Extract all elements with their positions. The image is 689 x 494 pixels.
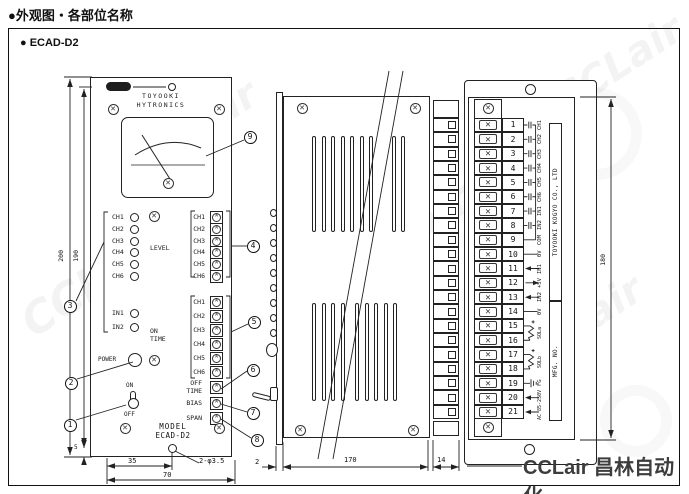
callout-off-time-pot: 6	[247, 364, 260, 377]
vent-slot	[401, 136, 405, 232]
terminal-screw-icon: ✕	[479, 292, 497, 302]
screw-icon: ✕	[297, 103, 308, 114]
dim-panel-2: 2	[255, 458, 259, 466]
mfg-plate-text: MFG. NO.	[552, 345, 559, 377]
terminal-number: 13	[502, 290, 524, 304]
terminal-screw-cell: ✕	[474, 118, 502, 132]
terminal-screw-icon: ✕	[479, 378, 497, 388]
terminal-screw-icon: ✕	[479, 192, 497, 202]
channel-led	[130, 272, 139, 281]
screw-icon: ✕	[163, 178, 174, 189]
power-switch-bushing-icon	[128, 398, 139, 409]
terminal-screw-icon: ✕	[479, 177, 497, 187]
terminal-number: 6	[502, 190, 524, 204]
pot-knob-icon: ✕	[212, 213, 221, 222]
brand-badge-icon	[106, 82, 131, 91]
pot-channel-label: CH2	[186, 312, 205, 320]
terminal-screw-cell: ✕	[474, 347, 502, 361]
vent-slot	[355, 303, 359, 401]
screw-icon: ✕	[214, 104, 225, 115]
pot-knob-icon: ✕	[212, 414, 221, 423]
terminal-profile-screw-icon	[448, 121, 456, 129]
callout-power-lamp: 2	[65, 377, 78, 390]
pot-channel-label: CH4	[186, 248, 205, 256]
pot-channel-label: CH6	[186, 272, 205, 280]
terminal-screw-cell: ✕	[474, 147, 502, 161]
screw-icon: ✕	[149, 355, 160, 366]
vent-slot	[341, 303, 345, 401]
terminal-number: 17	[502, 347, 524, 361]
bottom-mounting-hole-icon	[168, 444, 177, 453]
pot-knob-icon: ✕	[212, 312, 221, 321]
pot-knob-icon: ✕	[212, 248, 221, 257]
power-lamp	[128, 353, 142, 367]
terminal-screw-cell: ✕	[474, 218, 502, 232]
knob-bump-icon	[270, 239, 277, 247]
channel-pot: ✕	[210, 338, 223, 351]
pot-channel-label: CH4	[186, 340, 205, 348]
terminal-profile-screw-icon	[448, 250, 456, 258]
terminal-screw-cell: ✕	[474, 376, 502, 390]
input-led	[130, 323, 139, 332]
knob-bump-icon	[270, 329, 277, 337]
callout-meter: 9	[244, 131, 257, 144]
terminal-screw-icon: ✕	[479, 263, 497, 273]
terminal-number: 14	[502, 304, 524, 318]
terminal-profile-screw-icon	[448, 308, 456, 316]
terminal-number: 8	[502, 218, 524, 232]
terminal-profile-screw-icon	[448, 150, 456, 158]
page-title: ●外观图・各部位名称	[8, 5, 133, 24]
callout-span-pot: 8	[251, 434, 264, 447]
brand-line-1: TOYOOKI	[90, 92, 232, 100]
dim-terminal-14: 14	[437, 456, 445, 464]
terminal-profile-screw-icon	[448, 236, 456, 244]
terminal-pair-label: SOLb	[535, 346, 546, 378]
terminal-screw-cell: ✕	[474, 204, 502, 218]
channel-led	[130, 213, 139, 222]
pot-channel-label: CH2	[186, 225, 205, 233]
vent-slot	[393, 303, 397, 401]
pot-channel-label: CH6	[186, 368, 205, 376]
callout-bias-pot: 7	[247, 407, 260, 420]
pot-channel-label: CH5	[186, 260, 205, 268]
terminal-screw-cell: ✕	[474, 190, 502, 204]
vent-slot	[312, 136, 316, 232]
callout-power-switch: 1	[64, 419, 77, 432]
terminal-screw-cell: ✕	[474, 405, 502, 419]
screw-icon: ✕	[149, 211, 160, 222]
channel-led	[130, 248, 139, 257]
vent-slot	[350, 136, 354, 232]
screw-icon: ✕	[120, 423, 131, 434]
pot-knob-icon: ✕	[212, 326, 221, 335]
terminal-profile-screw-icon	[448, 379, 456, 387]
terminal-screw-cell: ✕	[474, 276, 502, 290]
callout-indicator-leds: 3	[64, 300, 77, 313]
terminal-screw-icon: ✕	[479, 321, 497, 331]
terminal-screw-cell: ✕	[474, 333, 502, 347]
led-label: CH5	[112, 260, 124, 268]
terminal-profile-screw-icon	[448, 336, 456, 344]
footer-watermark: CCLair 昌林自动化	[523, 451, 689, 494]
channel-pot: ✕	[210, 270, 223, 283]
dim-width-70: 70	[163, 471, 171, 479]
vent-slot	[322, 136, 326, 232]
terminal-number: 9	[502, 233, 524, 247]
vent-slot	[384, 303, 388, 401]
pot-channel-label: CH1	[186, 298, 205, 306]
switch-off-label: OFF	[124, 411, 135, 419]
knob-bump-icon	[270, 254, 277, 262]
terminal-screw-icon: ✕	[479, 350, 497, 360]
terminal-number: 1	[502, 118, 524, 132]
screw-icon: ✕	[408, 425, 419, 436]
single-pot-label: TIME	[168, 387, 202, 395]
toggle-mount-icon	[270, 387, 278, 401]
terminal-number: 2	[502, 132, 524, 146]
vent-slot	[331, 136, 335, 232]
channel-pot: ✕	[210, 366, 223, 379]
pot-knob-icon: ✕	[212, 399, 221, 408]
terminal-profile-screw-icon	[448, 322, 456, 330]
rear-top-hole-icon	[525, 84, 536, 95]
terminal-profile-screw-icon	[448, 408, 456, 416]
terminal-screw-icon: ✕	[479, 235, 497, 245]
vent-slot	[360, 136, 364, 232]
terminal-profile-end	[433, 100, 459, 118]
terminal-screw-icon: ✕	[479, 364, 497, 374]
switch-on-label: ON	[126, 382, 133, 390]
maker-plate-text: TOYOOKI KOGYO CO., LTD	[552, 168, 559, 256]
model-name-line2: ECAD-D2	[121, 432, 225, 441]
terminal-screw-icon: ✕	[479, 163, 497, 173]
led-label: CH1	[112, 213, 124, 221]
pot-knob-icon: ✕	[212, 368, 221, 377]
single-pot-label: SPAN	[168, 414, 202, 422]
led-label: CH4	[112, 248, 124, 256]
input-label: IN2	[112, 323, 124, 331]
terminal-screw-icon: ✕	[479, 206, 497, 216]
knob-bump-icon	[270, 284, 277, 292]
power-label: POWER	[98, 356, 116, 364]
terminal-screw-icon: ✕	[479, 120, 497, 130]
terminal-screw-cell: ✕	[474, 362, 502, 376]
knob-bump-icon	[270, 224, 277, 232]
terminal-number: 5	[502, 175, 524, 189]
vent-slot	[392, 136, 396, 232]
terminal-screw-cell: ✕	[474, 247, 502, 261]
terminal-number: 3	[502, 147, 524, 161]
channel-pot: ✕	[210, 324, 223, 337]
pot-knob-icon: ✕	[212, 340, 221, 349]
terminal-profile-screw-icon	[448, 164, 456, 172]
terminal-number: 21	[502, 405, 524, 419]
terminal-profile-screw-icon	[448, 135, 456, 143]
callout-level-pots: 4	[247, 240, 260, 253]
screw-icon: ✕	[108, 104, 119, 115]
led-label: CH3	[112, 237, 124, 245]
pot-knob-icon: ✕	[212, 354, 221, 363]
knob-bump-icon	[270, 209, 277, 217]
terminal-profile-screw-icon	[448, 265, 456, 273]
callout-on-time-pots: 5	[248, 316, 261, 329]
terminal-screw-icon: ✕	[479, 149, 497, 159]
terminal-number: 11	[502, 261, 524, 275]
led-label: CH2	[112, 225, 124, 233]
terminal-screw-cell: ✕	[474, 304, 502, 318]
terminal-screw-cell: ✕	[474, 161, 502, 175]
top-mounting-hole-icon	[168, 83, 176, 91]
vent-slot	[312, 303, 316, 401]
screw-icon: ✕	[214, 423, 225, 434]
channel-pot: ✕	[210, 352, 223, 365]
knob-bump-icon	[270, 314, 277, 322]
terminal-number: 7	[502, 204, 524, 218]
off-time-pot: ✕	[210, 381, 223, 394]
screw-icon: ✕	[410, 103, 421, 114]
terminal-number: 15	[502, 319, 524, 333]
terminal-profile-screw-icon	[448, 365, 456, 373]
channel-pot: ✕	[210, 296, 223, 309]
terminal-profile-screw-icon	[448, 193, 456, 201]
pot-channel-label: CH3	[186, 326, 205, 334]
watermark-ring	[600, 385, 672, 457]
vent-slot	[374, 303, 378, 401]
input-led	[130, 309, 139, 318]
power-lamp-bump-icon	[266, 343, 278, 357]
pot-channel-label: CH3	[186, 237, 205, 245]
terminal-pair-label: SOLa	[535, 317, 546, 349]
terminal-number: 19	[502, 376, 524, 390]
dim-depth-170: 170	[344, 456, 357, 464]
screw-icon: ✕	[483, 422, 494, 433]
dim-bottom-5: 5	[74, 444, 78, 451]
terminal-screw-icon: ✕	[479, 220, 497, 230]
terminal-screw-icon: ✕	[479, 393, 497, 403]
vent-slot	[331, 303, 335, 401]
terminal-profile-screw-icon	[448, 207, 456, 215]
dim-height-180: 180	[599, 254, 607, 266]
terminal-profile-screw-icon	[448, 178, 456, 186]
terminal-screw-cell: ✕	[474, 319, 502, 333]
pot-knob-icon: ✕	[212, 260, 221, 269]
pot-channel-label: CH5	[186, 354, 205, 362]
vent-slot	[322, 303, 326, 401]
knob-bump-icon	[270, 269, 277, 277]
knob-bump-icon	[270, 299, 277, 307]
terminal-screw-cell: ✕	[474, 175, 502, 189]
bias-pot: ✕	[210, 397, 223, 410]
pot-knob-icon: ✕	[212, 225, 221, 234]
terminal-profile-screw-icon	[448, 351, 456, 359]
pot-channel-label: CH1	[186, 213, 205, 221]
channel-pot: ✕	[210, 310, 223, 323]
pot-knob-icon: ✕	[212, 383, 221, 392]
exterior-drawing-page: ●外观图・各部位名称 ● ECAD-D2 TOYOOKI HYTRONICS P…	[0, 0, 689, 494]
pot-group-label: ON	[150, 327, 180, 335]
single-pot-label: OFF	[168, 379, 202, 387]
channel-led	[130, 260, 139, 269]
terminal-screw-cell: ✕	[474, 390, 502, 404]
terminal-screw-icon: ✕	[479, 134, 497, 144]
terminal-screw-icon: ✕	[479, 249, 497, 259]
terminal-screw-icon: ✕	[479, 278, 497, 288]
terminal-number: 4	[502, 161, 524, 175]
terminal-profile-screw-icon	[448, 293, 456, 301]
terminal-profile-screw-icon	[448, 221, 456, 229]
screw-icon: ✕	[483, 103, 494, 114]
single-pot-label: BIAS	[168, 399, 202, 407]
screw-icon: ✕	[295, 425, 306, 436]
mfg-plate: MFG. NO.	[549, 301, 562, 421]
terminal-screw-cell: ✕	[474, 261, 502, 275]
pot-knob-icon: ✕	[212, 272, 221, 281]
terminal-pair-label: AC 85-250V	[535, 389, 546, 421]
pot-knob-icon: ✕	[212, 237, 221, 246]
maker-plate: TOYOOKI KOGYO CO., LTD	[549, 123, 562, 301]
input-label: IN1	[112, 309, 124, 317]
terminal-screw-icon: ✕	[479, 335, 497, 345]
pot-group-label: LEVEL	[150, 244, 180, 252]
terminal-profile-end	[433, 421, 459, 436]
vent-slot	[369, 136, 373, 232]
dim-width-35: 35	[128, 457, 136, 465]
terminal-screw-cell: ✕	[474, 233, 502, 247]
terminal-profile-screw-icon	[448, 394, 456, 402]
dim-hole-callout: 2-φ3.5	[199, 457, 224, 465]
channel-led	[130, 237, 139, 246]
channel-led	[130, 225, 139, 234]
terminal-profile-screw-icon	[448, 279, 456, 287]
vent-slot	[365, 303, 369, 401]
terminal-number: 18	[502, 362, 524, 376]
terminal-screw-icon: ✕	[479, 407, 497, 417]
dim-height-200: 200	[57, 250, 65, 262]
terminal-number: 12	[502, 276, 524, 290]
terminal-number: 10	[502, 247, 524, 261]
terminal-screw-cell: ✕	[474, 290, 502, 304]
pot-knob-icon: ✕	[212, 298, 221, 307]
terminal-screw-cell: ✕	[474, 132, 502, 146]
led-label: CH6	[112, 272, 124, 280]
vent-slot	[341, 136, 345, 232]
model-frame-label: ● ECAD-D2	[20, 37, 79, 49]
terminal-screw-icon: ✕	[479, 307, 497, 317]
terminal-number: 20	[502, 390, 524, 404]
terminal-number: 16	[502, 333, 524, 347]
pot-group-label: TIME	[150, 335, 180, 343]
